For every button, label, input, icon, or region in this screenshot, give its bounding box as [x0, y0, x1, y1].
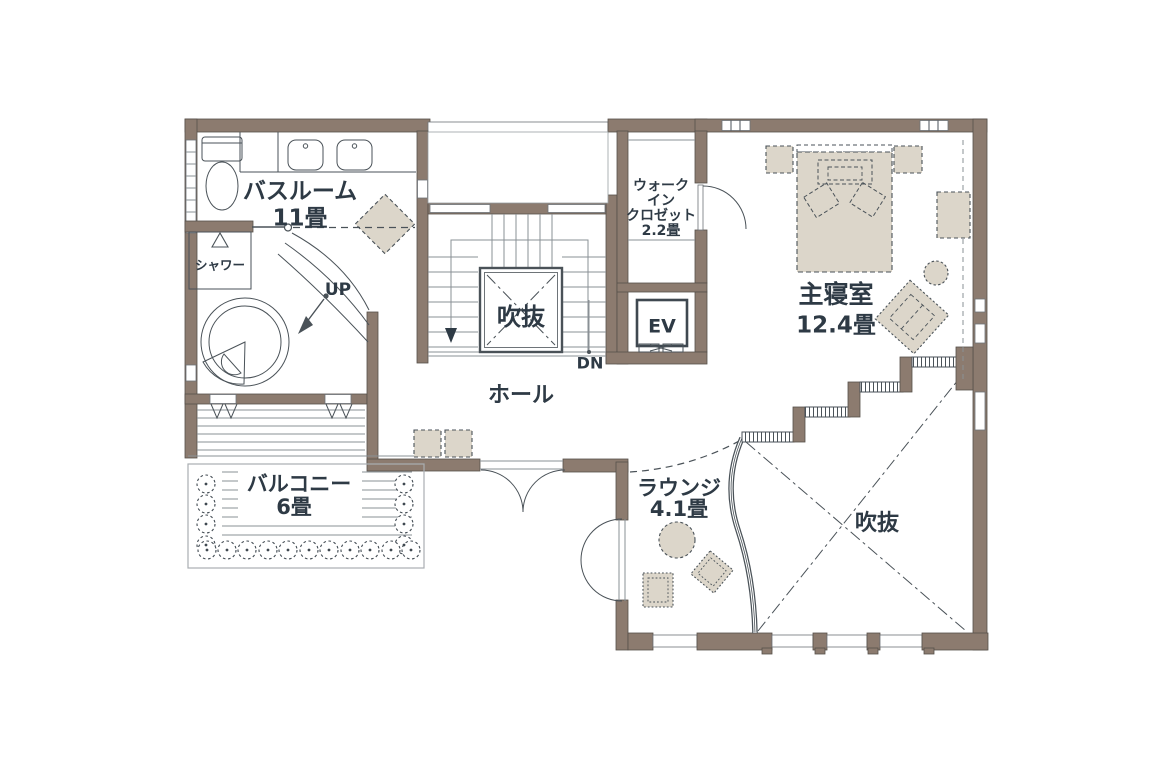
- room-label-shower: シャワー: [195, 258, 245, 273]
- room-label-open-void: 吹抜: [855, 510, 900, 536]
- window-mark: [225, 404, 237, 418]
- floorplan-drawing: UP バスルーム 11畳 シャワー: [0, 0, 1170, 780]
- upper-open-band: [428, 132, 608, 203]
- ceiling-edge-dashes: [630, 440, 741, 472]
- floor-cushion: [643, 573, 673, 607]
- bath-rug: [355, 194, 414, 253]
- balcony: バルコニー 6畳: [188, 464, 424, 568]
- hall-double-door: [480, 461, 565, 512]
- room-label-stair-void: 吹抜: [497, 303, 546, 331]
- room-area-lounge: 4.1畳: [650, 497, 708, 521]
- wic-door-arc: [698, 185, 746, 230]
- room-area-bedroom: 12.4畳: [796, 313, 876, 339]
- window-mark: [211, 404, 223, 418]
- dn-label: DN: [577, 354, 604, 373]
- dresser: [937, 192, 970, 238]
- curved-wall: [731, 438, 755, 633]
- lounge-double-door: [581, 519, 625, 601]
- deck-strip: [188, 404, 424, 456]
- sink-icon: [337, 140, 372, 170]
- room-label-bedroom: 主寝室: [798, 280, 873, 309]
- room-label-wic-2: イン: [647, 193, 675, 209]
- room-label-balcony: バルコニー: [247, 472, 352, 496]
- floor-cushion: [691, 551, 733, 593]
- up-label: UP: [325, 280, 351, 300]
- stool: [924, 261, 948, 285]
- walk-in-closet: ウォーク イン クロゼット 2.2畳: [626, 140, 746, 240]
- nightstand: [894, 146, 922, 173]
- armchair: [875, 280, 948, 353]
- hall: ホール: [414, 383, 625, 601]
- master-bedroom: 主寝室 12.4畳: [766, 140, 970, 383]
- south-wall: [628, 633, 988, 654]
- bed: [797, 145, 892, 272]
- room-label-wic-1: ウォーク: [633, 178, 689, 194]
- down-arrowhead: [445, 328, 457, 343]
- stair-void: 吹抜: [480, 268, 562, 352]
- shower-head-icon: [212, 233, 228, 247]
- room-label-bathroom: バスルーム: [243, 179, 357, 205]
- curved-partition: [278, 233, 369, 342]
- room-label-hall: ホール: [488, 383, 554, 408]
- toilet-icon: [202, 137, 242, 210]
- shower-stall: シャワー: [189, 232, 251, 289]
- sink-icon: [288, 140, 323, 170]
- room-label-wic-3: クロゼット: [626, 207, 696, 224]
- window-mark: [326, 404, 338, 418]
- window-mark: [340, 404, 352, 418]
- room-area-balcony: 6畳: [276, 495, 312, 519]
- room-label-elevator: EV: [648, 316, 676, 338]
- floorplan-page: UP バスルーム 11畳 シャワー: [0, 0, 1170, 780]
- lounge: ラウンジ 4.1畳: [630, 440, 741, 607]
- bathroom: UP バスルーム 11畳 シャワー: [189, 132, 416, 386]
- cushion: [445, 430, 472, 457]
- room-label-wic-4: 2.2畳: [642, 223, 681, 239]
- stepped-railing: [742, 347, 973, 442]
- stairwell: 吹抜 DN: [428, 214, 606, 373]
- round-bathtub-icon: [201, 298, 289, 386]
- nightstand: [766, 146, 793, 173]
- room-area-bathroom: 11畳: [272, 206, 327, 232]
- elevator: EV: [637, 300, 687, 352]
- cushion: [414, 430, 441, 457]
- vanity-counter: [240, 132, 416, 172]
- round-table: [659, 522, 695, 558]
